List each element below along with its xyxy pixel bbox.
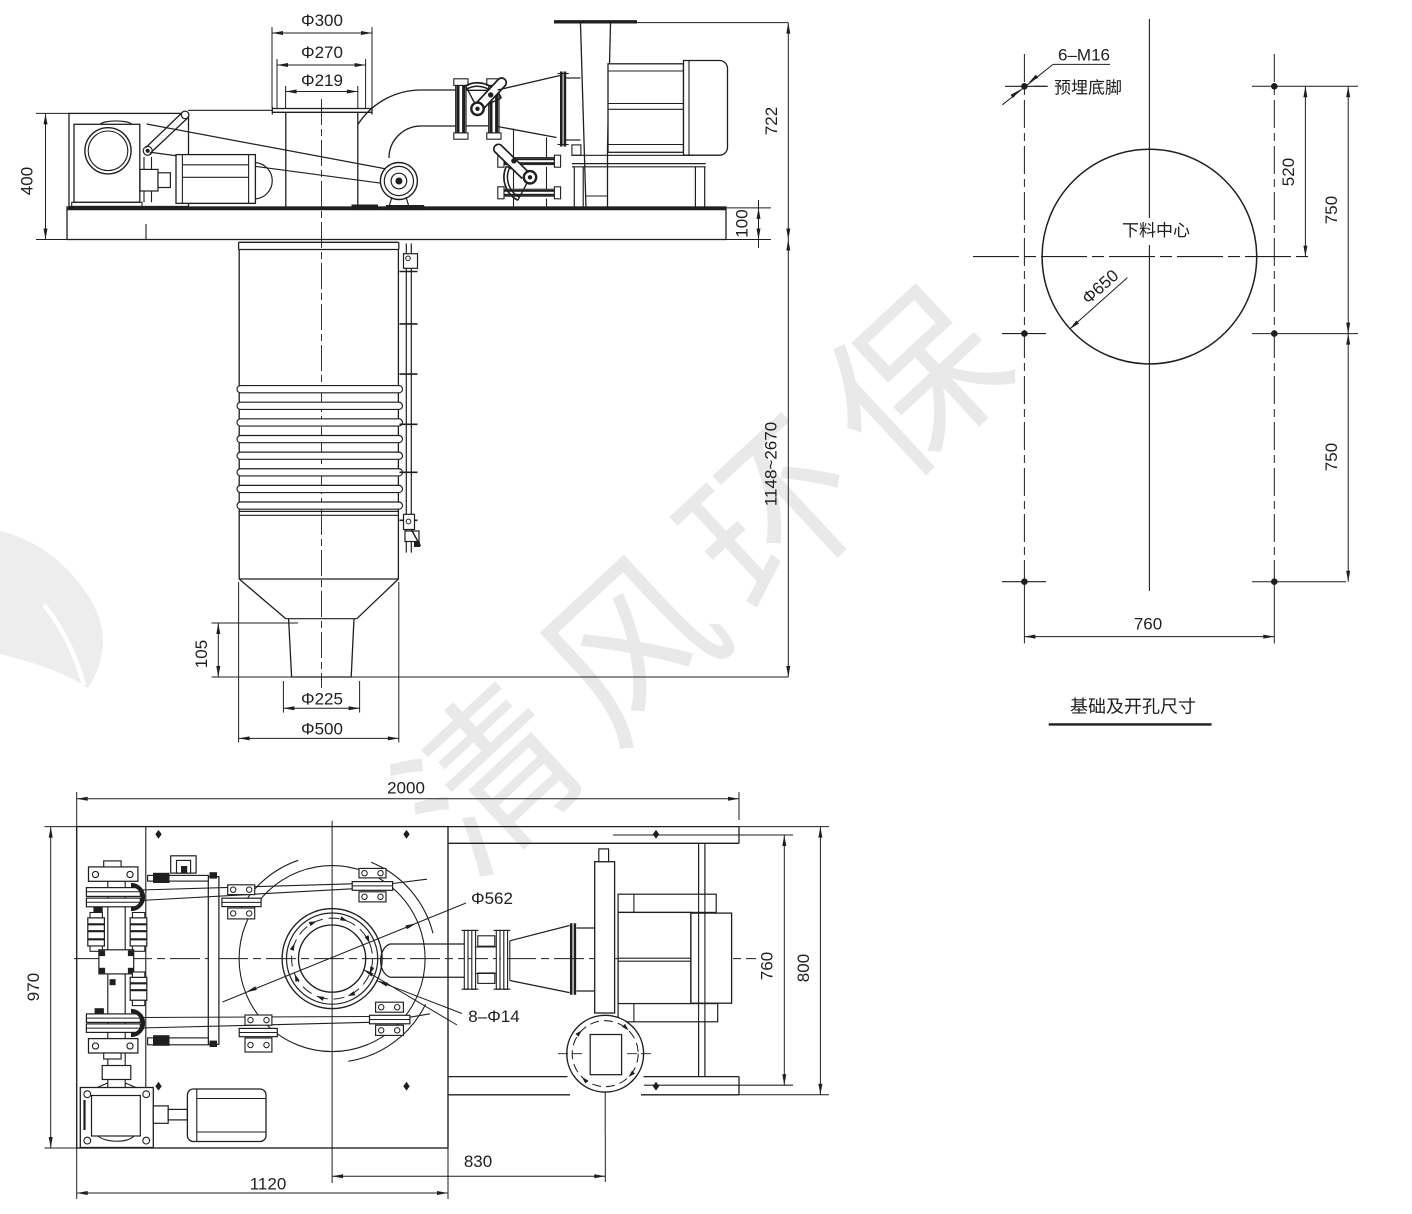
svg-text:1120: 1120	[250, 1175, 287, 1194]
svg-text:800: 800	[794, 954, 813, 982]
svg-text:970: 970	[24, 973, 43, 1001]
svg-text:520: 520	[1279, 158, 1298, 186]
svg-text:Φ219: Φ219	[301, 71, 343, 90]
svg-text:400: 400	[18, 167, 37, 195]
svg-text:722: 722	[762, 107, 781, 135]
svg-text:6–M16: 6–M16	[1058, 46, 1110, 65]
svg-text:8–Φ14: 8–Φ14	[468, 1007, 519, 1026]
svg-text:830: 830	[464, 1152, 492, 1171]
svg-text:105: 105	[192, 640, 211, 668]
svg-text:750: 750	[1322, 196, 1341, 224]
svg-text:2000: 2000	[387, 779, 425, 798]
svg-text:Φ270: Φ270	[301, 43, 343, 62]
svg-text:750: 750	[1322, 443, 1341, 471]
svg-text:760: 760	[1134, 615, 1162, 634]
svg-text:Φ225: Φ225	[301, 690, 343, 709]
svg-text:100: 100	[733, 209, 752, 237]
svg-text:1148~2670: 1148~2670	[762, 422, 781, 506]
svg-text:Φ562: Φ562	[471, 889, 513, 908]
svg-text:760: 760	[758, 952, 777, 980]
svg-text:Φ300: Φ300	[301, 11, 343, 30]
svg-text:Φ500: Φ500	[301, 720, 343, 739]
